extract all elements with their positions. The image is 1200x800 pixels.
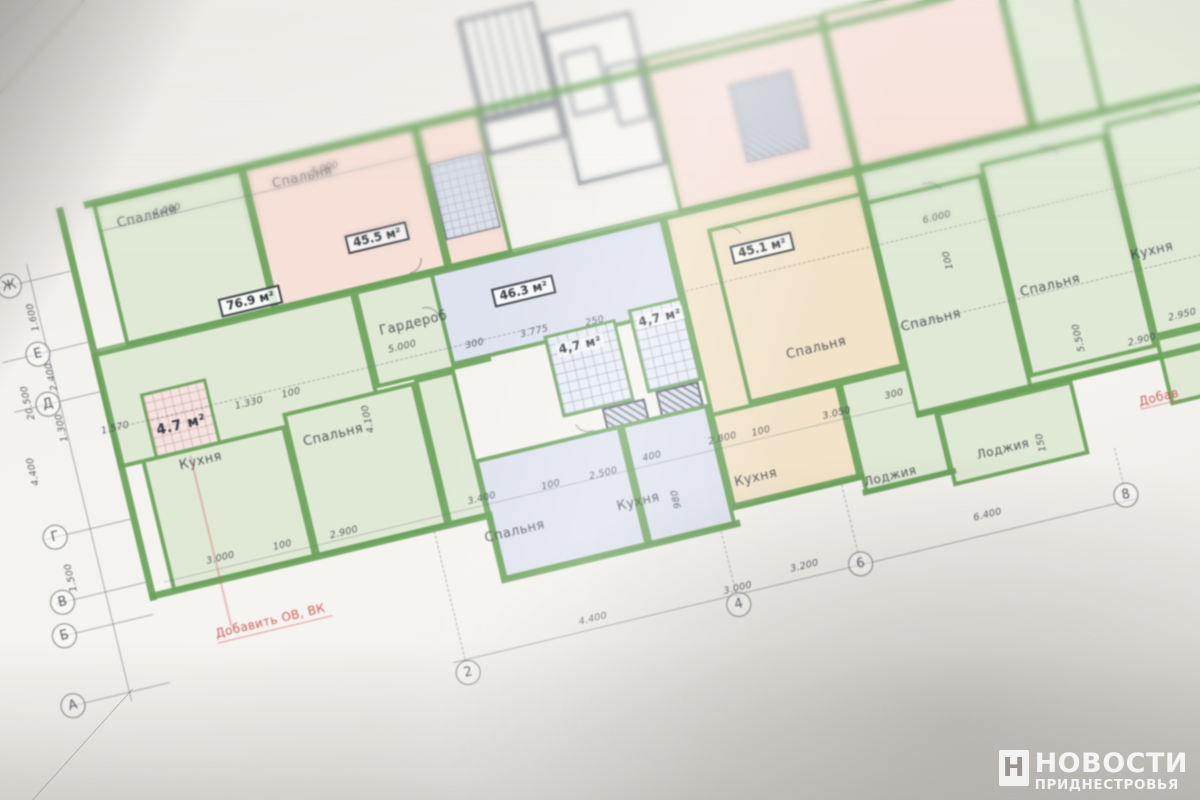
axis-bubble-a: А: [58, 691, 88, 721]
photo-of-floor-plan: Спальня Спальня Гардероб Кухня Спальня С…: [0, 0, 1200, 800]
axis-bubble-g: Г: [40, 522, 70, 552]
axis-bubble-b: Б: [49, 621, 79, 651]
axis-bubble-zh: Ж: [0, 271, 24, 301]
watermark-logo-icon: Н: [999, 750, 1029, 786]
dim-1500: 1.500: [62, 562, 79, 592]
dim-bottom-6400: 6.400: [972, 506, 1002, 523]
axis-tick-a: [72, 682, 169, 706]
axis-bubble-6: 6: [846, 549, 876, 579]
dim-4400-left: 4.400: [24, 456, 41, 486]
paper-edge-top-left-2: [0, 0, 42, 39]
centerline-v2: [434, 531, 466, 660]
watermark-title: НОВОСТИ: [1035, 750, 1188, 777]
red-note-right: Добав: [1137, 386, 1180, 410]
watermark: Н НОВОСТИ ПРИДНЕСТРОВЬЯ: [999, 750, 1188, 793]
axis-bubble-8: 8: [1111, 480, 1141, 510]
axis-chain-left: [26, 264, 132, 702]
floor-plan-sheet: Спальня Спальня Гардероб Кухня Спальня С…: [0, 0, 1200, 800]
dim-bottom-3200: 3.200: [789, 557, 819, 574]
watermark-subtitle: ПРИДНЕСТРОВЬЯ: [1035, 779, 1179, 793]
